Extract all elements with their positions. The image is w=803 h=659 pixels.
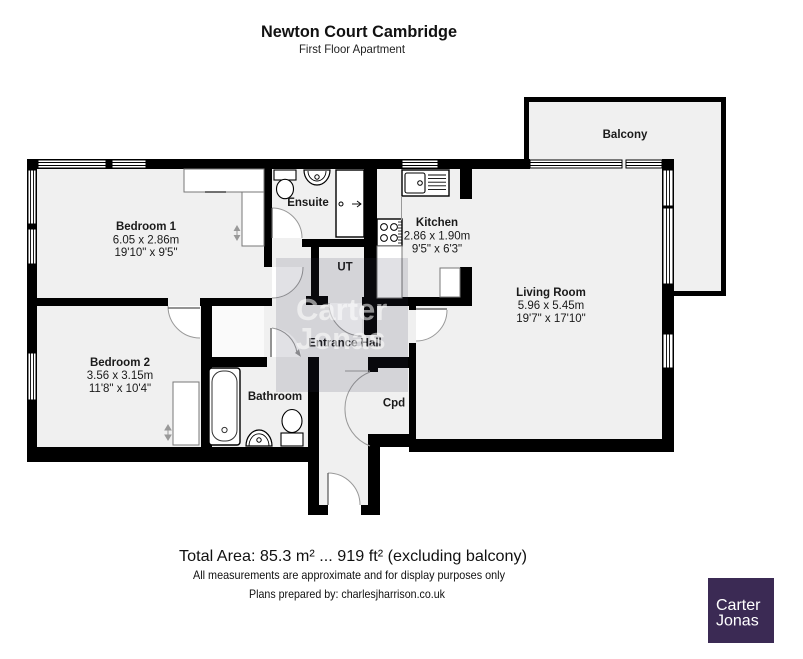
svg-text:Carter: Carter	[716, 597, 761, 614]
svg-text:Bedroom 2: Bedroom 2	[90, 357, 150, 369]
svg-text:2.86 x 1.90m: 2.86 x 1.90m	[404, 231, 470, 243]
svg-text:Bathroom: Bathroom	[248, 391, 302, 403]
svg-text:5.96 x 5.45m: 5.96 x 5.45m	[518, 300, 584, 312]
svg-text:3.56 x 3.15m: 3.56 x 3.15m	[87, 370, 153, 382]
svg-text:Kitchen: Kitchen	[416, 217, 458, 229]
svg-text:6.05 x 2.86m: 6.05 x 2.86m	[113, 235, 179, 247]
svg-text:Bedroom 1: Bedroom 1	[116, 221, 177, 233]
svg-text:First Floor Apartment: First Floor Apartment	[299, 42, 406, 56]
svg-text:All measurements are approxima: All measurements are approximate and for…	[193, 568, 505, 582]
svg-text:19'7" x 17'10": 19'7" x 17'10"	[516, 313, 585, 325]
svg-text:Jonas: Jonas	[716, 613, 759, 630]
svg-text:Balcony: Balcony	[603, 129, 648, 141]
svg-text:Cpd: Cpd	[383, 398, 405, 410]
svg-text:Plans prepared by: charlesjhar: Plans prepared by: charlesjharrison.co.u…	[249, 587, 446, 601]
svg-text:Living Room: Living Room	[516, 287, 586, 299]
svg-text:Newton Court Cambridge: Newton Court Cambridge	[261, 22, 457, 41]
svg-text:Ensuite: Ensuite	[287, 197, 329, 209]
svg-text:9'5" x 6'3": 9'5" x 6'3"	[412, 244, 462, 256]
svg-text:11'8" x 10'4": 11'8" x 10'4"	[89, 383, 151, 395]
svg-text:Jonas: Jonas	[296, 321, 386, 356]
svg-text:19'10" x 9'5": 19'10" x 9'5"	[114, 247, 177, 259]
svg-text:Total Area: 85.3 m² ... 919 ft: Total Area: 85.3 m² ... 919 ft² (excludi…	[179, 548, 527, 565]
